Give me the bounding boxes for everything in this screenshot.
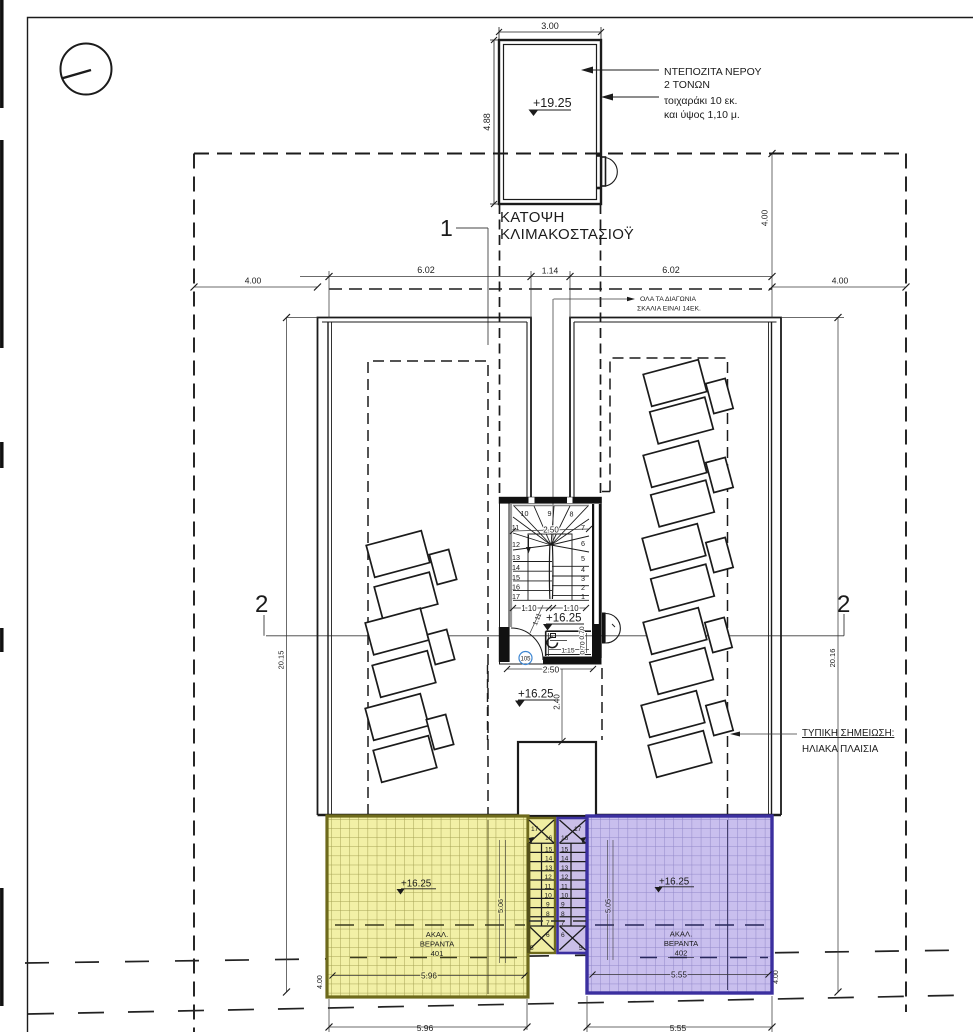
svg-text:2.50: 2.50 — [543, 526, 559, 535]
svg-text:ΑΚΑΛ.: ΑΚΑΛ. — [426, 930, 448, 939]
svg-text:15: 15 — [545, 847, 553, 854]
svg-text:4.88: 4.88 — [482, 113, 492, 131]
svg-text:+16.25: +16.25 — [401, 879, 432, 890]
svg-text:13: 13 — [545, 865, 553, 872]
svg-text:4.00: 4.00 — [245, 276, 262, 286]
svg-text:7: 7 — [581, 523, 585, 532]
svg-text:9: 9 — [561, 902, 565, 909]
svg-text:5.55: 5.55 — [671, 971, 687, 980]
svg-text:16: 16 — [512, 583, 520, 592]
svg-text:11: 11 — [545, 883, 552, 890]
svg-text:ΗΛΙΑΚΑ ΠΛΑΙΣΙΑ: ΗΛΙΑΚΑ ΠΛΑΙΣΙΑ — [802, 744, 879, 755]
svg-text:0.70: 0.70 — [579, 626, 586, 639]
svg-text:ΒΕΡΑΝΤΑ: ΒΕΡΑΝΤΑ — [420, 940, 455, 949]
svg-text:14: 14 — [561, 856, 569, 863]
svg-text:12: 12 — [512, 540, 520, 549]
svg-text:15: 15 — [512, 573, 520, 582]
svg-text:4: 4 — [581, 565, 585, 574]
svg-text:1: 1 — [440, 215, 453, 241]
svg-text:105: 105 — [520, 657, 531, 663]
svg-text:+16.25: +16.25 — [659, 877, 690, 888]
svg-text:11: 11 — [512, 523, 519, 532]
svg-text:17: 17 — [574, 826, 582, 833]
svg-text:1.10: 1.10 — [521, 604, 537, 613]
svg-text:5.96: 5.96 — [421, 972, 437, 981]
svg-text:6: 6 — [561, 932, 565, 939]
svg-text:4.00: 4.00 — [317, 975, 324, 989]
svg-text:402: 402 — [675, 949, 688, 958]
svg-text:12: 12 — [545, 874, 553, 881]
svg-text:12: 12 — [561, 874, 569, 881]
svg-text:3.00: 3.00 — [541, 21, 559, 31]
svg-text:4.00: 4.00 — [832, 276, 849, 286]
svg-text:ΣΚΑΛΙΑ ΕΙΝΑΙ 14ΕΚ.: ΣΚΑΛΙΑ ΕΙΝΑΙ 14ΕΚ. — [637, 306, 701, 313]
svg-text:ΚΛΙΜΑΚΟΣΤΑΣΙΟΫ: ΚΛΙΜΑΚΟΣΤΑΣΙΟΫ — [500, 226, 634, 243]
svg-text:20.15: 20.15 — [277, 651, 286, 670]
svg-text:6: 6 — [546, 932, 550, 939]
svg-text:8: 8 — [546, 911, 550, 918]
svg-text:10: 10 — [545, 893, 553, 900]
svg-text:17: 17 — [512, 592, 520, 601]
svg-text:5: 5 — [530, 945, 534, 952]
svg-text:5.96: 5.96 — [417, 1023, 434, 1032]
svg-text:ΒΕΡΑΝΤΑ: ΒΕΡΑΝΤΑ — [664, 939, 699, 948]
svg-text:και ύψος 1,10 μ.: και ύψος 1,10 μ. — [664, 109, 740, 121]
svg-text:ΟΛΑ ΤΑ ΔΙΑΓΩΝΙΑ: ΟΛΑ ΤΑ ΔΙΑΓΩΝΙΑ — [640, 296, 697, 303]
svg-text:ΑΚΑΛ.: ΑΚΑΛ. — [670, 930, 692, 939]
svg-text:3: 3 — [581, 574, 585, 583]
svg-text:6.02: 6.02 — [417, 265, 435, 275]
svg-text:13: 13 — [561, 865, 569, 872]
svg-text:2: 2 — [255, 591, 268, 618]
svg-text:4.00: 4.00 — [773, 970, 780, 984]
svg-text:1.15: 1.15 — [561, 648, 574, 655]
svg-text:+19.25: +19.25 — [533, 96, 572, 110]
svg-text:8: 8 — [561, 911, 565, 918]
svg-text:0.70: 0.70 — [580, 641, 587, 654]
svg-text:17: 17 — [531, 826, 539, 833]
svg-text:15: 15 — [561, 847, 569, 854]
svg-text:13: 13 — [512, 553, 520, 562]
svg-text:τοιχαράκι 10 εκ.: τοιχαράκι 10 εκ. — [664, 95, 737, 107]
svg-text:ΚΑΤΟΨΗ: ΚΑΤΟΨΗ — [500, 209, 565, 226]
svg-text:ΤΥΠΙΚΗ ΣΗΜΕΙΩΣΗ:: ΤΥΠΙΚΗ ΣΗΜΕΙΩΣΗ: — [802, 728, 894, 739]
svg-text:5.06: 5.06 — [496, 899, 505, 913]
svg-text:1: 1 — [581, 592, 585, 601]
svg-text:2: 2 — [581, 583, 585, 592]
svg-text:20.16: 20.16 — [828, 649, 837, 668]
svg-text:ΝΤΕΠΟΖΙΤΑ ΝΕΡΟΥ: ΝΤΕΠΟΖΙΤΑ ΝΕΡΟΥ — [664, 66, 761, 78]
svg-text:2 ΤΟΝΩΝ: 2 ΤΟΝΩΝ — [664, 79, 710, 91]
svg-text:6.02: 6.02 — [662, 265, 680, 275]
svg-text:5: 5 — [579, 945, 583, 952]
svg-text:4.00: 4.00 — [760, 209, 770, 226]
svg-text:16: 16 — [545, 835, 553, 842]
svg-text:+16.25: +16.25 — [546, 613, 582, 625]
svg-text:7: 7 — [561, 920, 565, 927]
svg-text:7: 7 — [546, 920, 550, 927]
svg-text:14: 14 — [545, 856, 553, 863]
svg-text:2.50: 2.50 — [543, 665, 560, 675]
svg-text:14: 14 — [512, 563, 520, 572]
svg-text:5.05: 5.05 — [604, 899, 613, 913]
svg-text:401: 401 — [431, 949, 444, 958]
svg-text:9: 9 — [546, 902, 550, 909]
svg-text:9: 9 — [548, 509, 552, 518]
svg-text:16: 16 — [561, 835, 569, 842]
svg-text:1.14: 1.14 — [542, 266, 559, 276]
svg-text:8: 8 — [570, 510, 574, 519]
svg-text:6: 6 — [581, 539, 585, 548]
svg-text:10: 10 — [521, 509, 529, 518]
svg-text:11: 11 — [561, 883, 568, 890]
svg-text:+16.25: +16.25 — [518, 689, 554, 701]
svg-text:5: 5 — [581, 554, 585, 563]
svg-text:2.40: 2.40 — [553, 694, 562, 710]
svg-text:5.55: 5.55 — [670, 1023, 687, 1032]
svg-text:2: 2 — [837, 591, 850, 618]
svg-text:10: 10 — [561, 893, 569, 900]
